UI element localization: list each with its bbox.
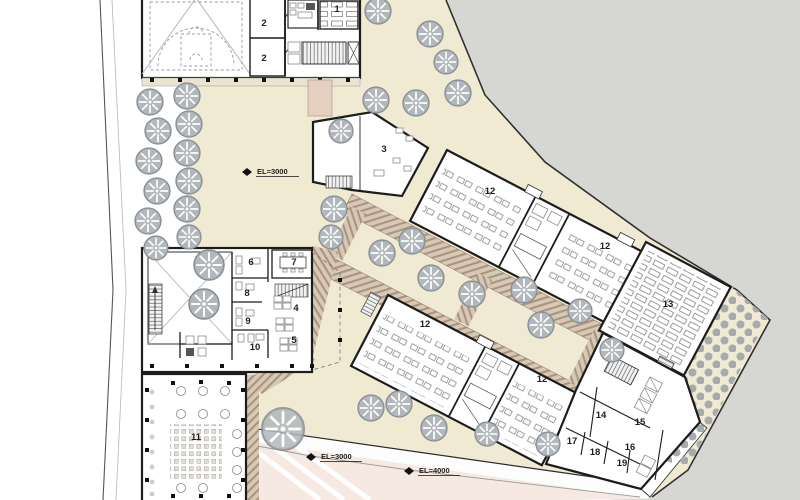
toilet-block (288, 0, 318, 28)
room-label-11: 11 (191, 432, 202, 443)
entry-path (308, 80, 332, 116)
large-tree (262, 408, 304, 450)
room-label-12d: 12 (537, 374, 548, 385)
room-label-9: 9 (245, 316, 250, 327)
room-label-13: 13 (663, 299, 674, 310)
room-label-15: 15 (635, 417, 646, 428)
site-plan-page: 1 2 2 3 4 5 6 7 8 9 10 11 12 12 12 12 13… (0, 0, 800, 500)
room-label-4: 4 (293, 303, 299, 314)
room-label-19: 19 (617, 458, 628, 469)
room-label-3: 3 (381, 144, 386, 155)
elevation-label: EL=3000 (321, 452, 352, 461)
gym-stair (302, 42, 346, 64)
elevation-label: EL=4000 (419, 466, 450, 475)
room-label-12c: 12 (420, 319, 431, 330)
room-label-17: 17 (567, 436, 578, 447)
room-label-8: 8 (244, 288, 249, 299)
room-label-12a: 12 (485, 186, 496, 197)
room-label-2a: 2 (261, 18, 266, 29)
room-label-2b: 2 (261, 53, 266, 64)
room-label-10: 10 (250, 342, 261, 353)
room-label-16: 16 (625, 442, 636, 453)
site-plan-drawing: 1 2 2 3 4 5 6 7 8 9 10 11 12 12 12 12 13… (0, 0, 800, 500)
elevator (288, 42, 300, 52)
room-label-14: 14 (596, 410, 607, 421)
elevation-label: EL=3000 (257, 167, 288, 176)
gym-building (142, 0, 360, 86)
lobby-stair (326, 176, 352, 188)
room-label-18: 18 (590, 447, 601, 458)
room-label-6: 6 (248, 257, 253, 268)
room-label-5: 5 (291, 335, 297, 346)
office-building (142, 248, 342, 372)
room-label-1: 1 (334, 4, 340, 15)
room-label-7: 7 (291, 257, 296, 268)
room-label-12b: 12 (600, 241, 611, 252)
